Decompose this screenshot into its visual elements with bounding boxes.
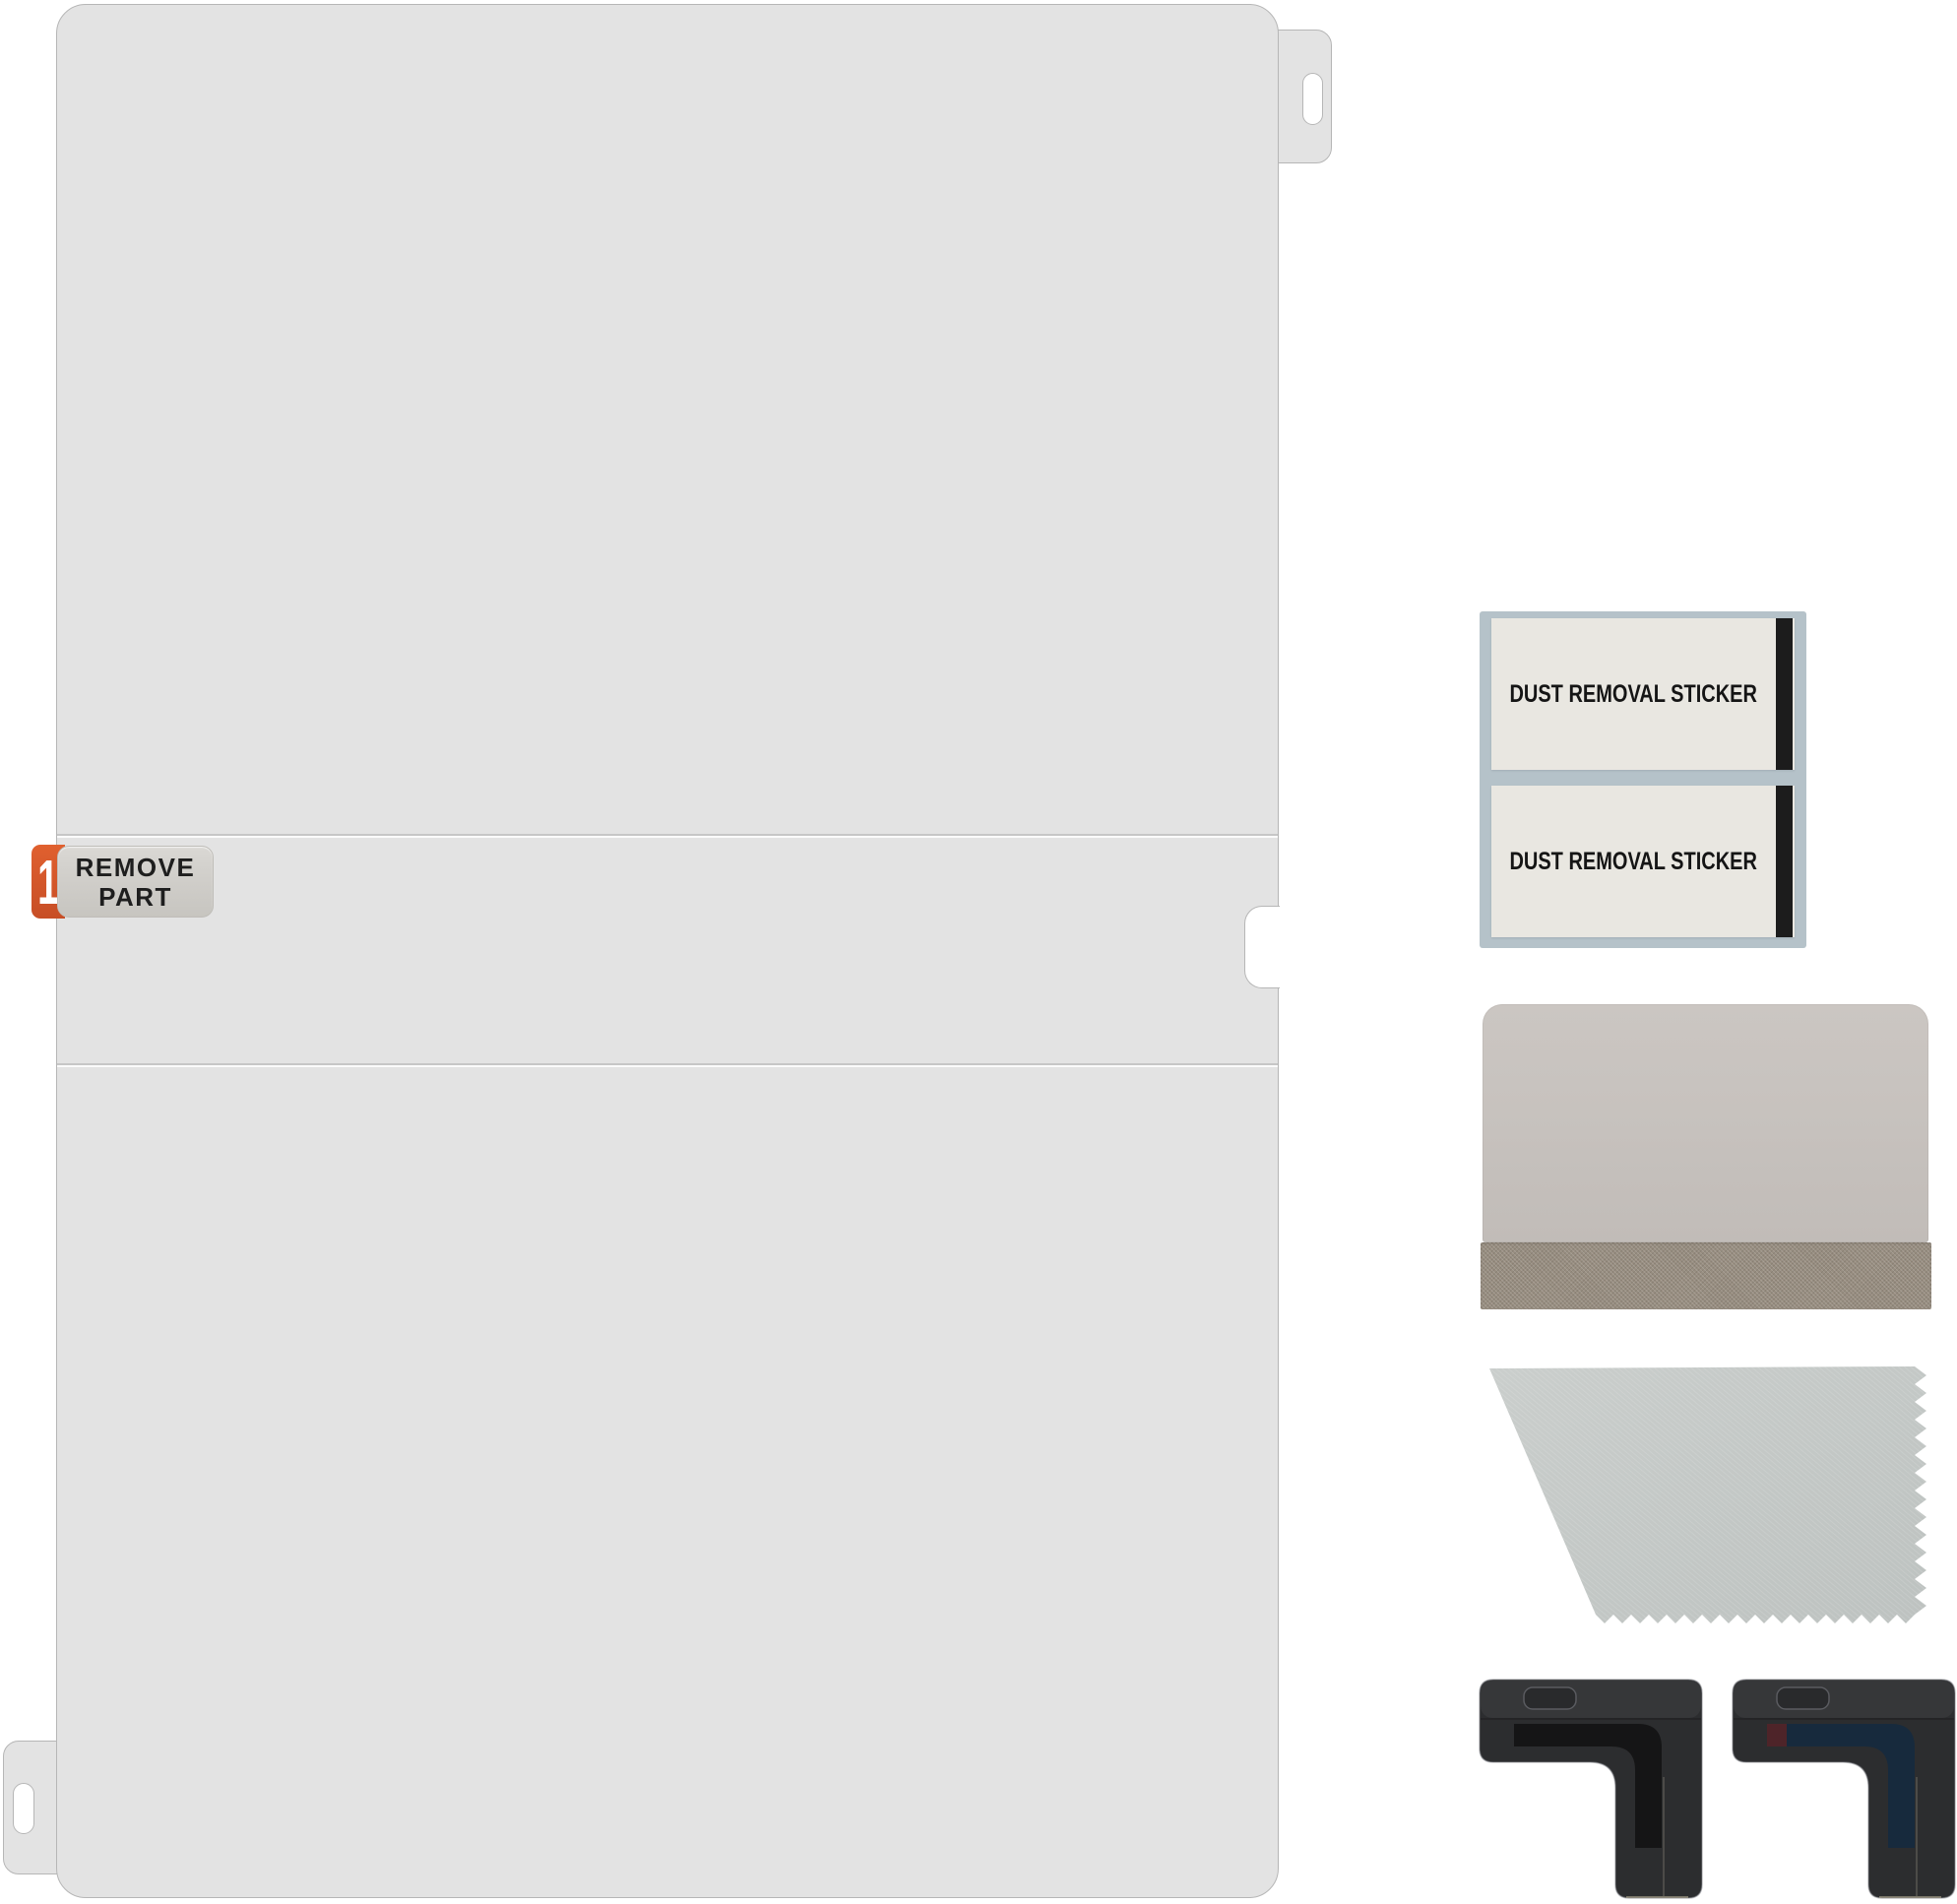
squeegee-card: [1483, 1004, 1928, 1309]
cloth-weave-texture: [1489, 1366, 1926, 1623]
film-seam-line-upper: [57, 834, 1278, 836]
guide-top-face: [1734, 1681, 1954, 1718]
corner-guide-right: [1732, 1679, 1956, 1900]
film-body: [56, 4, 1279, 1898]
step-number: 1: [37, 851, 58, 914]
sticker-label: DUST REMOVAL STICKER: [1491, 618, 1776, 770]
guide-adhesive-inlay: [1514, 1724, 1662, 1848]
remove-part-text-line2: PART: [98, 882, 172, 912]
dust-removal-sticker-sheet: DUST REMOVAL STICKER DUST REMOVAL STICKE…: [1480, 611, 1806, 948]
remove-part-label: REMOVE PART: [57, 846, 214, 918]
screen-protector-kit-photo: 1 REMOVE PART DUST REMOVAL STICKER DUST …: [0, 0, 1957, 1904]
microfiber-cloth: [1480, 1361, 1926, 1624]
dust-removal-sticker: DUST REMOVAL STICKER: [1491, 618, 1795, 770]
guide-top-nub: [1524, 1687, 1576, 1709]
guide-top-face: [1481, 1681, 1701, 1718]
sticker-black-bar: [1776, 786, 1793, 937]
squeegee-body: [1483, 1004, 1928, 1242]
sticker-label-text: DUST REMOVAL STICKER: [1510, 680, 1758, 709]
film-pull-tab-bottom-left: [3, 1741, 62, 1874]
sticker-label-text: DUST REMOVAL STICKER: [1510, 848, 1758, 876]
squeegee-felt-edge: [1481, 1242, 1931, 1309]
dust-removal-sticker: DUST REMOVAL STICKER: [1491, 786, 1795, 937]
pull-tab-slot-hole: [13, 1783, 34, 1834]
film-pull-tab-top-right: [1270, 30, 1332, 163]
guide-adhesive-inlay: [1767, 1724, 1915, 1848]
sticker-label: DUST REMOVAL STICKER: [1491, 786, 1776, 937]
film-seam-line-lower: [57, 1063, 1278, 1065]
guide-red-mark: [1767, 1724, 1787, 1746]
remove-part-text-line1: REMOVE: [76, 853, 196, 882]
sticker-black-bar: [1776, 618, 1793, 770]
pull-tab-slot-hole: [1302, 73, 1323, 125]
film-edge-notch: [1244, 906, 1280, 988]
guide-top-nub: [1777, 1687, 1829, 1709]
corner-guide-left: [1479, 1679, 1703, 1900]
